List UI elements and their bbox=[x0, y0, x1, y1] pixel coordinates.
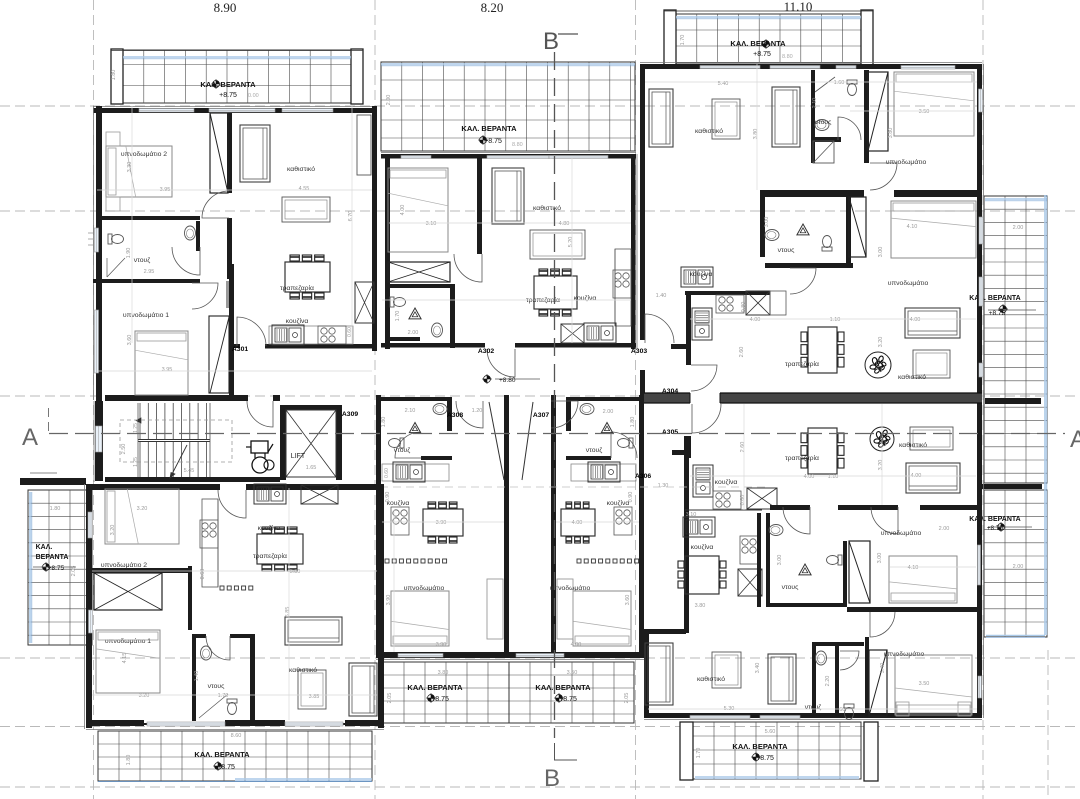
svg-text:8.60: 8.60 bbox=[231, 733, 242, 739]
svg-text:1.25: 1.25 bbox=[133, 457, 139, 467]
svg-text:2.60: 2.60 bbox=[740, 442, 746, 453]
svg-text:3.50: 3.50 bbox=[919, 681, 930, 687]
svg-text:ΚΑΛ. ΒΕΡΑΝΤΑ: ΚΑΛ. ΒΕΡΑΝΤΑ bbox=[969, 516, 1020, 523]
svg-text:καθιστικό: καθιστικό bbox=[695, 127, 723, 135]
svg-text:A: A bbox=[22, 424, 38, 451]
svg-text:τραπεζαρία: τραπεζαρία bbox=[253, 552, 287, 560]
svg-text:4.10: 4.10 bbox=[907, 224, 918, 230]
svg-text:0.00: 0.00 bbox=[248, 93, 259, 99]
svg-text:1.80: 1.80 bbox=[111, 70, 117, 81]
svg-text:τραπεζαρία: τραπεζαρία bbox=[785, 454, 819, 462]
svg-text:4.15: 4.15 bbox=[122, 653, 128, 664]
svg-text:τραπεζαρία: τραπεζαρία bbox=[280, 284, 314, 292]
svg-text:+8.75: +8.75 bbox=[484, 138, 502, 145]
svg-text:+8.75: +8.75 bbox=[48, 565, 65, 572]
svg-text:ντουζ: ντουζ bbox=[134, 257, 150, 264]
svg-text:0.60: 0.60 bbox=[740, 495, 746, 506]
svg-text:1.70: 1.70 bbox=[696, 748, 702, 759]
svg-text:3.00: 3.00 bbox=[878, 247, 884, 258]
svg-text:2.20: 2.20 bbox=[825, 676, 831, 687]
svg-text:4.00: 4.00 bbox=[750, 317, 761, 323]
svg-text:υπνοδωμάτιο: υπνοδωμάτιο bbox=[881, 529, 922, 537]
svg-text:A302: A302 bbox=[478, 348, 494, 355]
svg-text:5.45: 5.45 bbox=[184, 468, 195, 474]
svg-text:8.90: 8.90 bbox=[214, 0, 237, 15]
svg-text:5.80: 5.80 bbox=[290, 569, 301, 575]
svg-text:ντους: ντους bbox=[815, 119, 832, 126]
svg-text:4.55: 4.55 bbox=[299, 186, 310, 192]
svg-text:3.20: 3.20 bbox=[110, 525, 116, 536]
svg-text:ΚΑΛ. ΒΕΡΑΝΤΑ: ΚΑΛ. ΒΕΡΑΝΤΑ bbox=[407, 683, 463, 692]
svg-text:8.80: 8.80 bbox=[782, 54, 793, 60]
svg-text:2.05: 2.05 bbox=[387, 693, 393, 704]
svg-text:2.00: 2.00 bbox=[408, 330, 419, 336]
svg-text:ΚΑΛ. ΒΕΡΑΝΤΑ: ΚΑΛ. ΒΕΡΑΝΤΑ bbox=[461, 124, 517, 133]
svg-text:κουζίνα: κουζίνα bbox=[715, 478, 738, 486]
svg-text:3.90: 3.90 bbox=[436, 642, 447, 648]
svg-text:καθιστικό: καθιστικό bbox=[289, 666, 317, 674]
svg-text:1.10: 1.10 bbox=[830, 317, 841, 323]
svg-text:ΚΑΛ. ΒΕΡΑΝΤΑ: ΚΑΛ. ΒΕΡΑΝΤΑ bbox=[535, 683, 591, 692]
svg-text:1.90: 1.90 bbox=[126, 248, 132, 259]
svg-text:3.40: 3.40 bbox=[880, 663, 886, 674]
svg-text:A308: A308 bbox=[447, 412, 463, 419]
svg-text:3.50: 3.50 bbox=[567, 670, 578, 676]
svg-text:5.60: 5.60 bbox=[765, 729, 776, 735]
svg-text:4.00: 4.00 bbox=[910, 317, 921, 323]
svg-text:3.80: 3.80 bbox=[753, 129, 759, 140]
svg-text:1.80: 1.80 bbox=[381, 417, 387, 428]
svg-text:8.80: 8.80 bbox=[512, 142, 523, 148]
svg-text:3.20: 3.20 bbox=[878, 460, 884, 471]
svg-text:υπνοδωμάτιο 1: υπνοδωμάτιο 1 bbox=[123, 311, 169, 319]
svg-text:2.05: 2.05 bbox=[624, 693, 630, 704]
svg-text:A303: A303 bbox=[631, 348, 647, 355]
svg-text:6.70: 6.70 bbox=[348, 211, 354, 222]
svg-text:1.70: 1.70 bbox=[395, 311, 401, 322]
svg-text:1.40: 1.40 bbox=[656, 293, 667, 299]
svg-text:2.50: 2.50 bbox=[121, 444, 127, 455]
svg-text:1.60: 1.60 bbox=[834, 80, 845, 86]
svg-text:ΒΕΡΑΝΤΑ: ΒΕΡΑΝΤΑ bbox=[36, 554, 69, 561]
svg-text:3.20: 3.20 bbox=[139, 693, 150, 699]
svg-text:A305: A305 bbox=[662, 429, 678, 436]
svg-text:0.60: 0.60 bbox=[384, 468, 390, 478]
svg-text:A301: A301 bbox=[232, 346, 248, 353]
svg-text:3.50: 3.50 bbox=[919, 109, 930, 115]
svg-text:3.10: 3.10 bbox=[686, 512, 697, 518]
svg-text:ΚΑΛ. ΒΕΡΑΝΤΑ: ΚΑΛ. ΒΕΡΑΝΤΑ bbox=[200, 80, 256, 89]
svg-text:1.70: 1.70 bbox=[680, 35, 686, 46]
svg-text:3.90: 3.90 bbox=[436, 520, 447, 526]
svg-text:ΚΑΛ. ΒΕΡΑΝΤΑ: ΚΑΛ. ΒΕΡΑΝΤΑ bbox=[194, 750, 250, 759]
svg-text:LIFT: LIFT bbox=[291, 453, 306, 460]
svg-text:4.00: 4.00 bbox=[400, 205, 406, 216]
svg-text:+8.75: +8.75 bbox=[753, 51, 771, 58]
svg-text:3.00: 3.00 bbox=[764, 217, 770, 228]
svg-text:1.80: 1.80 bbox=[126, 755, 132, 766]
svg-text:ΚΑΛ. ΒΕΡΑΝΤΑ: ΚΑΛ. ΒΕΡΑΝΤΑ bbox=[732, 742, 788, 751]
svg-text:4.00: 4.00 bbox=[572, 520, 583, 526]
svg-text:2.00: 2.00 bbox=[603, 409, 614, 415]
svg-text:2.10: 2.10 bbox=[405, 408, 416, 414]
svg-text:κουζίνα: κουζίνα bbox=[574, 294, 597, 302]
svg-text:καθιστικό: καθιστικό bbox=[533, 204, 561, 212]
svg-text:καθιστικό: καθιστικό bbox=[697, 675, 725, 683]
svg-text:3.20: 3.20 bbox=[137, 506, 148, 512]
svg-text:καθιστικό: καθιστικό bbox=[898, 373, 926, 381]
svg-text:A307: A307 bbox=[533, 412, 549, 419]
svg-text:1.30: 1.30 bbox=[658, 483, 669, 489]
svg-text:υπνοδωμάτιο: υπνοδωμάτιο bbox=[884, 650, 925, 658]
svg-text:1.20: 1.20 bbox=[472, 408, 483, 414]
svg-text:B: B bbox=[543, 28, 559, 55]
svg-text:A304: A304 bbox=[662, 388, 678, 395]
svg-text:κουζίνα: κουζίνα bbox=[691, 543, 714, 551]
svg-text:1.70: 1.70 bbox=[218, 693, 229, 699]
svg-text:1.10: 1.10 bbox=[828, 474, 839, 480]
svg-text:0.60: 0.60 bbox=[200, 569, 206, 580]
svg-text:υπνοδωμάτιο: υπνοδωμάτιο bbox=[886, 158, 927, 166]
svg-text:4.80: 4.80 bbox=[559, 221, 570, 227]
svg-text:ντουζ: ντουζ bbox=[586, 447, 602, 454]
svg-text:3.80: 3.80 bbox=[695, 603, 706, 609]
svg-text:2.10: 2.10 bbox=[812, 98, 818, 109]
svg-text:B: B bbox=[544, 765, 560, 792]
svg-text:καθιστικό: καθιστικό bbox=[287, 165, 315, 173]
svg-text:3.80: 3.80 bbox=[438, 670, 449, 676]
svg-text:2.00: 2.00 bbox=[1013, 564, 1024, 570]
svg-text:3.10: 3.10 bbox=[426, 221, 437, 227]
svg-text:2.00: 2.00 bbox=[939, 526, 950, 532]
svg-text:κουζίνα: κουζίνα bbox=[387, 499, 410, 507]
svg-text:1.25: 1.25 bbox=[133, 423, 139, 433]
svg-text:3.60: 3.60 bbox=[625, 595, 631, 606]
svg-text:4.00: 4.00 bbox=[571, 642, 582, 648]
svg-text:κουζίνα: κουζίνα bbox=[690, 270, 713, 278]
svg-text:υπνοδωμάτιο 1: υπνοδωμάτιο 1 bbox=[105, 637, 151, 645]
svg-text:2.95: 2.95 bbox=[144, 269, 155, 275]
svg-text:2.60: 2.60 bbox=[739, 347, 745, 358]
svg-text:A309: A309 bbox=[342, 411, 358, 418]
svg-text:1.65: 1.65 bbox=[306, 465, 317, 471]
svg-text:3.90: 3.90 bbox=[386, 595, 392, 606]
svg-text:υπνοδωμάτιο: υπνοδωμάτιο bbox=[888, 279, 929, 287]
svg-text:τραπεζαρία: τραπεζαρία bbox=[785, 360, 819, 368]
svg-text:ντους: ντους bbox=[782, 584, 799, 591]
svg-text:3.95: 3.95 bbox=[162, 367, 173, 373]
svg-text:3.00: 3.00 bbox=[777, 555, 783, 566]
svg-text:11.10: 11.10 bbox=[784, 0, 813, 14]
svg-text:2.00: 2.00 bbox=[386, 95, 392, 106]
svg-text:υπνοδωμάτιο 2: υπνοδωμάτιο 2 bbox=[121, 150, 167, 158]
svg-text:3.40: 3.40 bbox=[755, 663, 761, 674]
svg-text:2.05: 2.05 bbox=[71, 566, 77, 577]
svg-text:4.00: 4.00 bbox=[804, 474, 815, 480]
svg-text:ντους: ντους bbox=[778, 247, 795, 254]
svg-text:+8.75: +8.75 bbox=[219, 92, 237, 99]
svg-text:1.40: 1.40 bbox=[194, 671, 200, 682]
svg-text:8.20: 8.20 bbox=[481, 0, 504, 15]
svg-text:ΚΑΛ. ΒΕΡΑΝΤΑ: ΚΑΛ. ΒΕΡΑΝΤΑ bbox=[969, 295, 1020, 302]
svg-text:+8.80: +8.80 bbox=[499, 377, 516, 384]
svg-text:A306: A306 bbox=[635, 473, 651, 480]
svg-text:5.20: 5.20 bbox=[568, 237, 574, 248]
svg-text:κουζίνα: κουζίνα bbox=[258, 524, 281, 532]
svg-text:1.80: 1.80 bbox=[50, 506, 61, 512]
svg-text:A: A bbox=[1070, 426, 1080, 453]
svg-text:ΚΑΛ.: ΚΑΛ. bbox=[36, 544, 53, 551]
svg-text:ντουζ: ντουζ bbox=[394, 447, 410, 454]
svg-text:6.85: 6.85 bbox=[285, 607, 291, 618]
svg-text:4.10: 4.10 bbox=[908, 565, 919, 571]
svg-text:1.80: 1.80 bbox=[630, 417, 636, 428]
svg-text:2.00: 2.00 bbox=[1013, 225, 1024, 231]
svg-text:3.20: 3.20 bbox=[878, 337, 884, 348]
svg-text:κουζίνα: κουζίνα bbox=[286, 317, 309, 325]
svg-text:ΚΑΛ. ΒΕΡΑΝΤΑ: ΚΑΛ. ΒΕΡΑΝΤΑ bbox=[730, 39, 786, 48]
svg-text:3.80: 3.80 bbox=[888, 128, 894, 139]
svg-text:ντους: ντους bbox=[208, 683, 225, 690]
svg-text:υπνοδωμάτιο 2: υπνοδωμάτιο 2 bbox=[101, 561, 147, 569]
svg-text:3.00: 3.00 bbox=[877, 553, 883, 564]
svg-text:0.80: 0.80 bbox=[741, 302, 747, 313]
svg-text:κουζίνα: κουζίνα bbox=[607, 499, 630, 507]
